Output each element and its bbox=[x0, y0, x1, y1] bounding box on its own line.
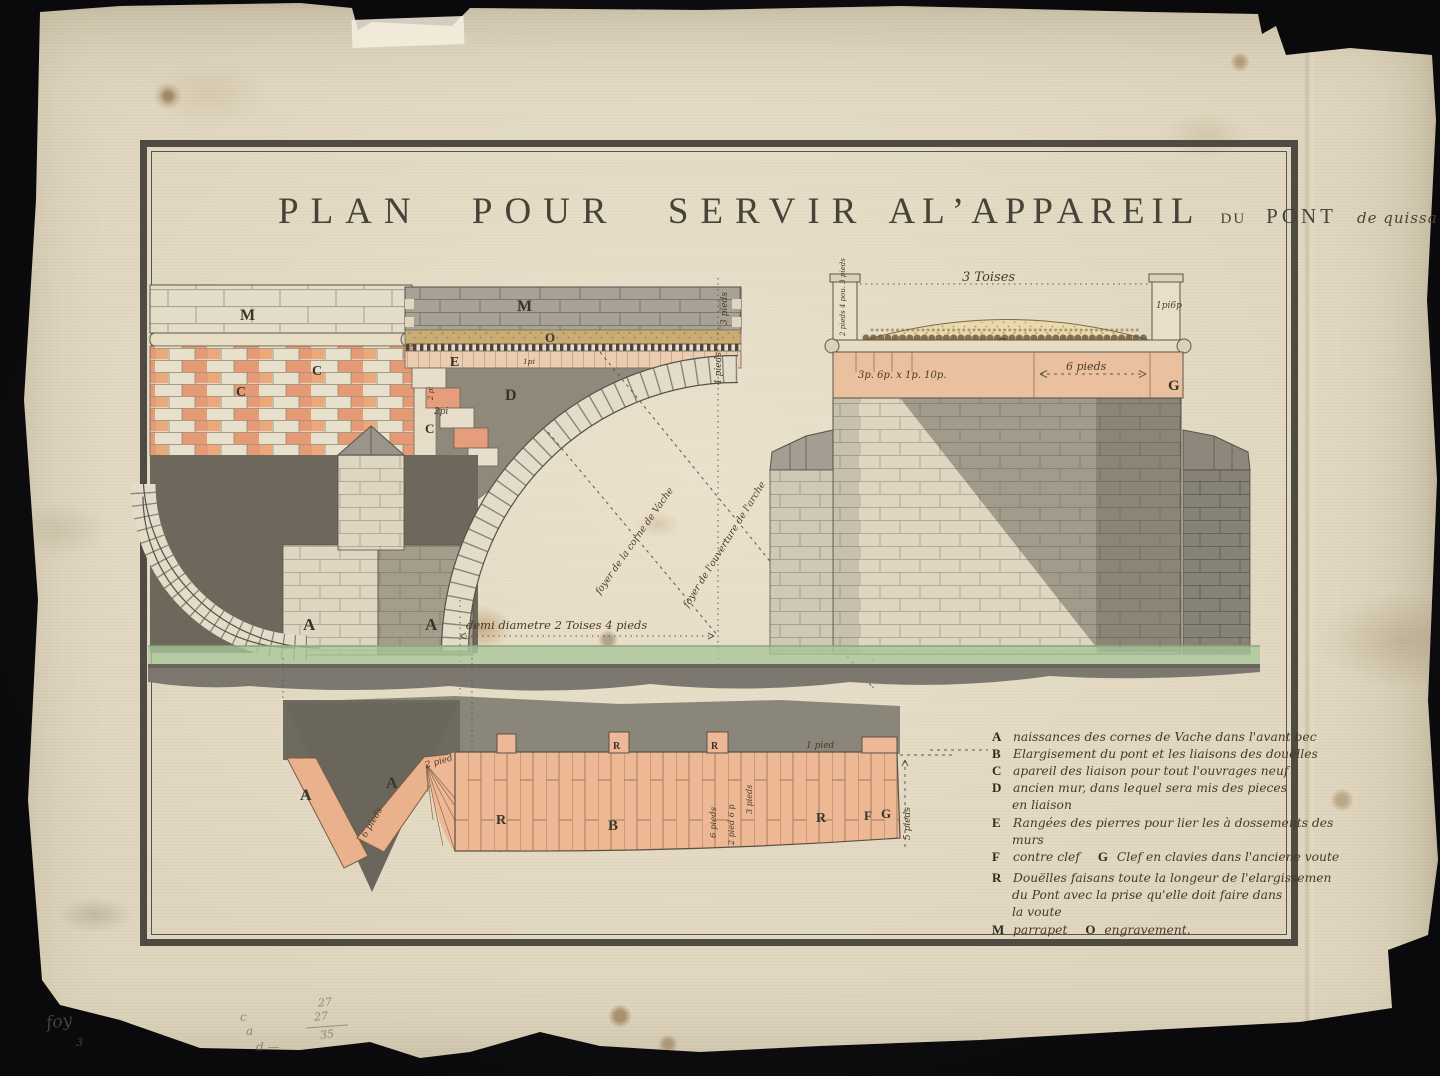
legend-text: ancien mur, dans lequel sera mis des pie… bbox=[1013, 781, 1287, 795]
dim-1-pied: 1 pied bbox=[806, 741, 835, 751]
legend-row-fg: F contre clef G Clef en clavies dans l'a… bbox=[992, 848, 1339, 866]
label-step-dim2: 2 pi bbox=[427, 387, 435, 401]
legend-key: O bbox=[1085, 922, 1100, 938]
dim-pilaster-right: 1pi6p bbox=[1156, 301, 1182, 311]
legend-row-e: E Rangées des pierres pour lier les à do… bbox=[992, 814, 1333, 832]
legend-key: R bbox=[992, 870, 1009, 886]
legend-text: la voute bbox=[1012, 905, 1062, 919]
legend-row-d-cont: en liaison bbox=[1012, 796, 1072, 814]
legend-text: engravement. bbox=[1104, 923, 1190, 937]
legend-text: parrapet bbox=[1013, 923, 1067, 937]
label-r2: R bbox=[816, 811, 827, 826]
legend-key: D bbox=[992, 780, 1009, 796]
dim-3-pieds-vertical: 3 pieds bbox=[720, 292, 730, 325]
label-a-left: A bbox=[303, 615, 316, 634]
dim-3-pieds-strip: 3 pieds bbox=[745, 785, 754, 814]
legend-key: E bbox=[992, 815, 1009, 831]
label-m-right: M bbox=[517, 298, 532, 315]
legend-text: murs bbox=[1012, 833, 1044, 847]
label-r1: R bbox=[496, 813, 507, 828]
legend-row-a: A naissances des cornes de Vache dans l'… bbox=[992, 728, 1317, 746]
label-f: F bbox=[864, 808, 872, 823]
left-elevation-drawing: M M C C C O E 1pi D 2pi 2 pi A A 3 pieds… bbox=[143, 278, 873, 694]
ray-label-ouverture-arche: foyer de l'ouverture de l'arche bbox=[681, 479, 769, 610]
ray-label-corne-de-vache: foyer de la corne de Vache bbox=[593, 485, 676, 597]
dim-2-pied-6: 2 pied 6 p bbox=[727, 805, 736, 846]
label-g: G bbox=[1168, 378, 1180, 394]
label-o-band: O bbox=[545, 330, 555, 345]
legend-text: Rangées des pierres pour lier les à doss… bbox=[1013, 816, 1333, 830]
water-and-ground bbox=[148, 646, 1260, 691]
label-c1: C bbox=[312, 364, 322, 379]
legend-text: naissances des cornes de Vache dans l'av… bbox=[1013, 730, 1317, 744]
legend-key: F bbox=[992, 849, 1009, 865]
legend-key: M bbox=[992, 922, 1009, 938]
legend-row-e-cont: murs bbox=[1012, 831, 1044, 849]
label-a-right: A bbox=[425, 615, 438, 634]
label-step-dim: 2pi bbox=[433, 407, 448, 417]
legend-text: contre clef bbox=[1013, 850, 1080, 864]
pencil-letter-c: c bbox=[240, 1010, 247, 1024]
dim-3-toises: 3 Toises bbox=[962, 270, 1015, 285]
legend-text: Douëlles faisans toute la longeur de l'e… bbox=[1013, 871, 1331, 885]
dim-4-pieds-vertical: 4 pieds bbox=[714, 352, 724, 386]
label-b: B bbox=[608, 818, 618, 834]
legend-row-r: R Douëlles faisans toute la longeur de l… bbox=[992, 869, 1331, 887]
label-c2: C bbox=[236, 385, 246, 400]
dim-band: 3p. 6p. x 1p. 10p. bbox=[858, 370, 947, 381]
margin-foy-number: 3 bbox=[76, 1036, 83, 1049]
label-g-strip: G bbox=[881, 806, 891, 821]
label-a-bec-right: A bbox=[386, 775, 398, 792]
legend-row-c: C apareil des liaison pour tout l'ouvrag… bbox=[992, 762, 1288, 780]
label-e-dim: 1pi bbox=[523, 357, 536, 366]
legend-row-b: B Elargisement du pont et les liaisons d… bbox=[992, 745, 1318, 763]
plan-strip-drawing: R R R B R F G A A 2 pied 6 pieds 1 pied … bbox=[283, 658, 988, 892]
legend-key: C bbox=[992, 763, 1009, 779]
label-d: D bbox=[505, 387, 517, 404]
legend-text: apareil des liaison pour tout l'ouvrages… bbox=[1013, 764, 1288, 778]
pencil-letter-d: d — bbox=[256, 1040, 280, 1054]
label-r-tab1: R bbox=[613, 741, 621, 752]
legend-row-d: D ancien mur, dans lequel sera mis des p… bbox=[992, 779, 1287, 797]
legend-text: en liaison bbox=[1012, 798, 1072, 812]
legend-text: du Pont avec la prise qu'elle doit faire… bbox=[1012, 888, 1282, 902]
pencil-sum-2: 27 bbox=[313, 1009, 328, 1023]
legend-row-r-cont1: du Pont avec la prise qu'elle doit faire… bbox=[1012, 886, 1282, 904]
label-a-bec-left: A bbox=[300, 787, 312, 804]
pencil-letter-a: a bbox=[246, 1024, 253, 1038]
dim-demi-diametre: demi diametre 2 Toises 4 pieds bbox=[466, 618, 647, 632]
bridge-drawing-artwork: M M C C C O E 1pi D 2pi 2 pi A A 3 pieds… bbox=[0, 0, 1440, 1076]
label-r-tab2: R bbox=[711, 741, 719, 752]
dim-6-pieds: 6 pieds bbox=[1066, 360, 1107, 373]
legend-row-mo: M parrapet O engravement. bbox=[992, 921, 1191, 939]
label-e: E bbox=[450, 355, 459, 370]
dim-6-pieds-strip: 6 pieds bbox=[709, 806, 719, 838]
label-step-c: C bbox=[425, 421, 434, 436]
legend-key: B bbox=[992, 746, 1009, 762]
legend-key: G bbox=[1098, 849, 1113, 865]
pencil-sum-1: 27 bbox=[317, 995, 332, 1009]
scanned-drawing-canvas: PLAN POUR SERVIR ALʼAPPAREIL DU PONT de … bbox=[0, 0, 1440, 1076]
label-m-left: M bbox=[240, 307, 255, 324]
margin-foy: foy bbox=[45, 1010, 74, 1033]
legend-key: A bbox=[992, 729, 1009, 745]
pencil-sum-total: 35 bbox=[319, 1027, 334, 1041]
dim-pilaster-left: 2 pieds 4 pou. 3 pieds bbox=[839, 258, 847, 337]
legend-text: Elargisement du pont et les liaisons des… bbox=[1013, 747, 1318, 761]
right-pier-drawing: 3 Toises 2 pieds 4 pou. 3 pieds 1pi6p O … bbox=[770, 258, 1250, 654]
legend-text: Clef en clavies dans l'anciene voute bbox=[1117, 850, 1339, 864]
dim-5-pieds: 5 pieds bbox=[903, 807, 913, 840]
legend-row-r-cont2: la voute bbox=[1012, 903, 1062, 921]
